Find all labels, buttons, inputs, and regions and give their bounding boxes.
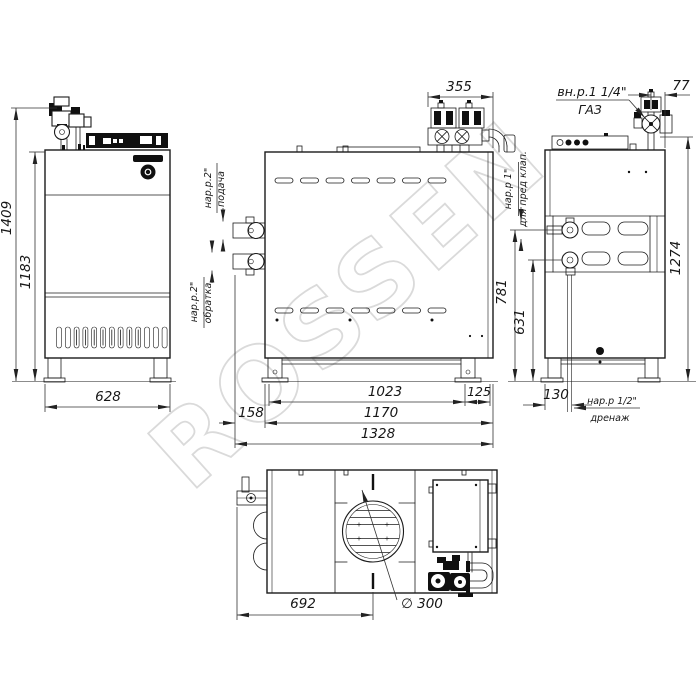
dim-right-total-height: 1274 xyxy=(668,241,684,275)
supply-pipe xyxy=(233,217,265,239)
return-thread-label: нар.р.2" xyxy=(189,282,200,323)
dim-return-height: 631 xyxy=(512,309,528,335)
top-dimensions: 692 ∅ 300 xyxy=(237,490,443,620)
dim-relief-height: 781 xyxy=(494,279,510,305)
gas-thread-label: вн.р.1 1/4" xyxy=(557,84,626,99)
relief-name-label: для пред клап. xyxy=(518,151,529,228)
right-gas-valve xyxy=(634,89,672,150)
return-port-label: нар.р.2" обратка xyxy=(189,243,214,328)
top-pipe-bumps xyxy=(254,512,267,570)
return-pipe xyxy=(233,254,265,276)
dim-flue-diameter: ∅ 300 xyxy=(401,596,443,612)
boiler-drawing: ROSSEN xyxy=(0,0,700,700)
dim-leg-offset: 125 xyxy=(467,384,491,399)
right-control-panel xyxy=(552,133,636,150)
technical-drawing-sheet: ROSSEN xyxy=(0,0,700,700)
relief-thread-label: нар.р 1" xyxy=(503,169,514,210)
top-left-bracket xyxy=(237,477,267,505)
front-dimensions: 1409 1183 628 xyxy=(0,108,170,412)
top-view: 692 ∅ 300 xyxy=(237,470,497,620)
relief-valve-port xyxy=(547,218,578,238)
supply-thread-label: нар.р.2" xyxy=(203,168,214,209)
front-body-outline xyxy=(45,150,170,358)
return-name-label: обратка xyxy=(203,283,214,324)
right-oval-slots xyxy=(582,222,648,265)
dim-gas-offset: 77 xyxy=(672,78,690,94)
dim-flue-offset: 692 xyxy=(290,596,316,612)
dim-front-width: 628 xyxy=(95,389,121,405)
brand-logo-plate xyxy=(133,155,163,162)
front-vent-slots xyxy=(57,327,168,348)
front-control-panel xyxy=(62,133,168,150)
top-control-box xyxy=(429,480,496,552)
supply-name-label: подача xyxy=(216,171,227,207)
dim-drain-offset: 130 xyxy=(543,387,569,403)
drain-thread-label: нар.р 1/2" xyxy=(587,396,637,407)
right-view: вн.р.1 1/4" ГАЗ нар.р 1" для пред клап. … xyxy=(494,78,696,424)
drain-name-label: дренаж xyxy=(589,413,629,424)
gas-connection-label: вн.р.1 1/4" ГАЗ xyxy=(556,84,645,118)
dim-overall-length: 1328 xyxy=(361,426,395,442)
dim-legs-span: 1023 xyxy=(368,384,402,400)
dim-gas-train-width: 355 xyxy=(446,79,472,95)
dim-front-body-height: 1183 xyxy=(18,255,34,289)
dim-front-total-height: 1409 xyxy=(0,201,15,235)
dim-body-length: 1170 xyxy=(364,405,398,421)
top-gas-train xyxy=(428,553,493,597)
gas-name-label: ГАЗ xyxy=(578,102,602,117)
drain-plug-dot xyxy=(596,347,604,355)
flue-opening xyxy=(343,474,404,589)
supply-port-label: нар.р.2" подача xyxy=(203,163,227,251)
control-knob xyxy=(141,165,156,180)
dim-pipe-protrusion: 158 xyxy=(238,405,264,421)
front-gas-valve-assembly xyxy=(49,97,91,150)
drain-label: нар.р 1/2" дренаж xyxy=(574,396,640,424)
side-vent-slots-top xyxy=(275,178,446,183)
front-view: 1409 1183 628 xyxy=(0,97,176,412)
front-legs xyxy=(44,358,171,382)
